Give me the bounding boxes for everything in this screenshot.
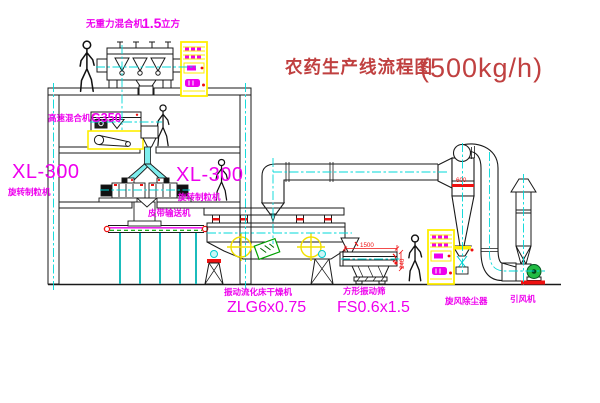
dryer-model-label: ZLG6x0.75 (227, 299, 306, 316)
title-capacity: (500kg/h) (420, 53, 543, 83)
control-cabinet-top (181, 42, 207, 96)
cyclone-red-band (452, 184, 474, 187)
dryer-inlet-duct (262, 162, 438, 222)
sieve-name-label: 方形振动筛 (343, 286, 386, 296)
cyclone-discharge (453, 246, 474, 274)
exhaust-elbow-bottom (481, 249, 502, 281)
cyclone-inlet-transition (438, 158, 452, 188)
material-stream (145, 147, 151, 166)
sieve-model-label: FS0.6x1.5 (337, 299, 410, 316)
gravity-mixer-size: 1.5 (142, 15, 162, 31)
cyclone-label: 旋风除尘器 (444, 296, 488, 306)
granulator-right-model: XL-300 (176, 164, 244, 186)
dim-cyclone-body: 600 (456, 177, 467, 184)
high-speed-mixer-model: G350 (91, 111, 122, 125)
fan-label: 引风机 (510, 294, 536, 304)
dryer-foot-right (311, 251, 333, 285)
drop-duct-flange (128, 221, 161, 226)
mixer-outlet-hopper (143, 138, 156, 147)
fluid-bed-dryer (204, 208, 359, 284)
belt-conveyor-label: 皮带输送机 (147, 208, 191, 218)
mixer-discharge-cone (136, 80, 156, 86)
high-speed-mixer-name: 高速混合机 (48, 113, 91, 123)
person-figure-ground (409, 235, 422, 281)
drawing-title: 农药生产线流程图 (500kg/h) (284, 53, 543, 83)
title-text: 农药生产线流程图 (284, 57, 433, 77)
gravity-mixer-name: 无重力混合机 (85, 18, 144, 30)
dim-sieve-length: 1500 (360, 242, 374, 249)
gravity-mixer-label: 无重力混合机 1.5 立方 (85, 14, 181, 32)
dryer-foot-left (205, 251, 223, 285)
cad-canvas: 农药生产线流程图 (500kg/h) 无重力混合机 1.5 立方 高速混合机 G… (0, 0, 600, 403)
control-cabinet-right (428, 230, 454, 284)
granulator-right-name: 旋转制粒机 (177, 192, 221, 202)
person-figure-floor2 (158, 105, 169, 146)
belt-conveyor (104, 226, 207, 285)
gravity-mixer-unit: 立方 (161, 18, 181, 30)
fan-inlet-box (502, 263, 516, 281)
cyclone-outlet (454, 145, 471, 162)
fan-base (521, 281, 545, 285)
floor2-slab-right (156, 147, 240, 153)
granulator-left-name: 旋转制粒机 (7, 187, 51, 197)
dryer-name-label: 振动流化床干燥机 (224, 287, 293, 297)
cyclone-cone (452, 196, 474, 246)
dim-sieve-height: 340 (399, 258, 406, 269)
dryer-body (207, 223, 345, 242)
conveyor-roller-left (104, 226, 109, 231)
floor3-slab-left (59, 202, 132, 208)
granulator-left-model: XL-300 (12, 161, 80, 183)
mixer-drive-guard (88, 131, 143, 149)
person-figure-roof (80, 41, 94, 91)
process-flow-drawing: 农药生产线流程图 (500kg/h) 无重力混合机 1.5 立方 高速混合机 G… (0, 0, 600, 403)
